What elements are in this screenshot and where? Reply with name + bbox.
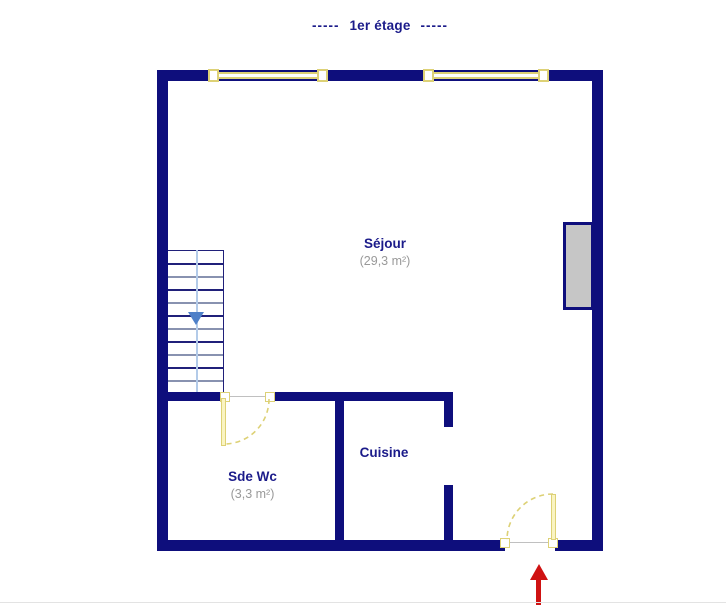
room-area: (3,3 m²) [195, 486, 310, 503]
entrance-latch-marker [500, 538, 510, 548]
room-area: (29,3 m²) [320, 253, 450, 270]
window-pane-lines [219, 72, 317, 79]
window-end-square [423, 69, 434, 82]
wall-panel [563, 222, 594, 310]
door-leaf-entrance [551, 494, 556, 540]
door-swing-arc-sdewc [225, 399, 269, 444]
window-end-square [208, 69, 219, 82]
title-dash-left: ----- [312, 18, 339, 33]
door-latch-marker [265, 392, 275, 402]
room-label-sdewc: Sde Wc (3,3 m²) [195, 468, 310, 503]
wall-right [592, 70, 603, 551]
wall-bottom-right [555, 540, 603, 551]
room-name: Cuisine [338, 444, 430, 462]
room-label-cuisine: Cuisine [338, 444, 430, 462]
room-label-sejour: Séjour (29,3 m²) [320, 235, 450, 270]
entrance-arrow-shaft [536, 578, 541, 605]
page-title: -----1er étage----- [157, 18, 603, 33]
room-name: Séjour [320, 235, 450, 253]
door-swing-arcs [0, 0, 726, 605]
room-name: Sde Wc [195, 468, 310, 486]
window-top-right-icon [423, 69, 549, 82]
stair-down-arrow-icon [188, 312, 204, 325]
door-leaf-sdewc [221, 398, 226, 446]
wall-interior-mid [270, 392, 453, 401]
title-dash-right: ----- [421, 18, 448, 33]
wall-cuisine-right-lower [444, 485, 453, 545]
wall-cuisine-left [335, 392, 344, 551]
door-swing-arc-entrance [507, 494, 553, 540]
floor-title-text: 1er étage [349, 18, 410, 33]
window-end-square [317, 69, 328, 82]
window-pane-lines [434, 72, 538, 79]
page-bottom-divider [0, 602, 726, 603]
window-end-square [538, 69, 549, 82]
wall-left [157, 70, 168, 551]
floor-plan-canvas: -----1er étage----- [0, 0, 726, 605]
window-top-left-icon [208, 69, 328, 82]
door-opening-line [225, 396, 270, 397]
wall-cuisine-right-upper [444, 392, 453, 427]
wall-interior-stairs [157, 392, 225, 401]
